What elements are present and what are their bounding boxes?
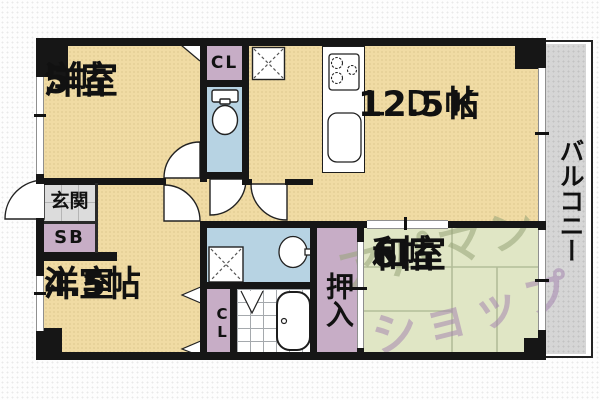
wall-toilet-bottom bbox=[200, 172, 249, 179]
bath-folding-door-icon bbox=[241, 291, 263, 313]
toilet-icon bbox=[212, 90, 238, 135]
wall-bottom bbox=[36, 352, 546, 360]
door-arc-washroom bbox=[251, 184, 287, 220]
wall-western1-bottom bbox=[36, 178, 166, 185]
wall-closet-top-bottom bbox=[200, 80, 249, 87]
wall-corner-ldk bbox=[515, 38, 546, 69]
wall-closet-left-upper bbox=[200, 40, 207, 182]
sliding-door-tick bbox=[404, 217, 407, 230]
window-tick bbox=[535, 279, 549, 282]
sink-icon bbox=[328, 113, 361, 162]
sliding-door-ldk-washitsu bbox=[367, 220, 448, 229]
label-western2-size: 4.5帖 bbox=[44, 266, 141, 305]
stove-icon bbox=[329, 54, 359, 90]
label-western1-size: 5帖 bbox=[44, 60, 107, 101]
pipe-space-icon bbox=[253, 48, 285, 80]
wall-bath-left bbox=[230, 282, 237, 353]
label-closet-top: CL bbox=[207, 54, 242, 73]
label-entrance: 玄関 bbox=[44, 191, 95, 212]
wall-oshiire-left bbox=[310, 228, 317, 353]
wall-entrance-sb-divider bbox=[44, 221, 95, 224]
label-ldk-size: 12.5帖 bbox=[358, 86, 479, 125]
sliding-door-oshiire bbox=[357, 242, 364, 348]
window-balcony-ldk bbox=[538, 68, 546, 221]
window-left-upper bbox=[36, 77, 44, 174]
wall-toilet-ldk bbox=[242, 40, 249, 181]
window-left-lower bbox=[36, 276, 44, 331]
label-japanese-size: 6帖 bbox=[372, 234, 435, 275]
wall-top bbox=[36, 38, 546, 46]
wall-oshiire-right-stub-bottom bbox=[357, 348, 364, 353]
wall-sb-bottom bbox=[36, 252, 117, 261]
wall-corner-bottom-left bbox=[36, 328, 62, 360]
label-oshiire: 押入 bbox=[320, 252, 354, 347]
label-balcony: バルコニー bbox=[548, 88, 584, 313]
entrance-door-opening bbox=[36, 184, 44, 218]
window-tick bbox=[535, 132, 549, 135]
wall-entrance-right bbox=[95, 183, 98, 253]
door-arc-toilet bbox=[210, 179, 246, 215]
wall-ldk-south-b bbox=[448, 221, 546, 228]
wall-corner-bottom-right bbox=[524, 338, 546, 360]
wall-ldk-south-a bbox=[200, 221, 367, 228]
wall-washroom-bottom bbox=[200, 282, 317, 289]
wall-ldk-passage-b bbox=[285, 179, 313, 185]
washing-machine-icon bbox=[209, 247, 243, 282]
floorplan-canvas: アパマン ショップ bbox=[0, 0, 600, 400]
wall-oshiire-right-stub-top bbox=[357, 222, 364, 242]
door-arc-western1 bbox=[164, 142, 200, 178]
bathtub-icon bbox=[277, 292, 310, 350]
wall-ldk-passage-a bbox=[242, 179, 252, 185]
door-arc-hall bbox=[164, 185, 200, 221]
label-closet-bottom: CL bbox=[207, 298, 230, 348]
label-shoe-box: SB bbox=[44, 228, 95, 248]
window-tick bbox=[34, 114, 46, 117]
